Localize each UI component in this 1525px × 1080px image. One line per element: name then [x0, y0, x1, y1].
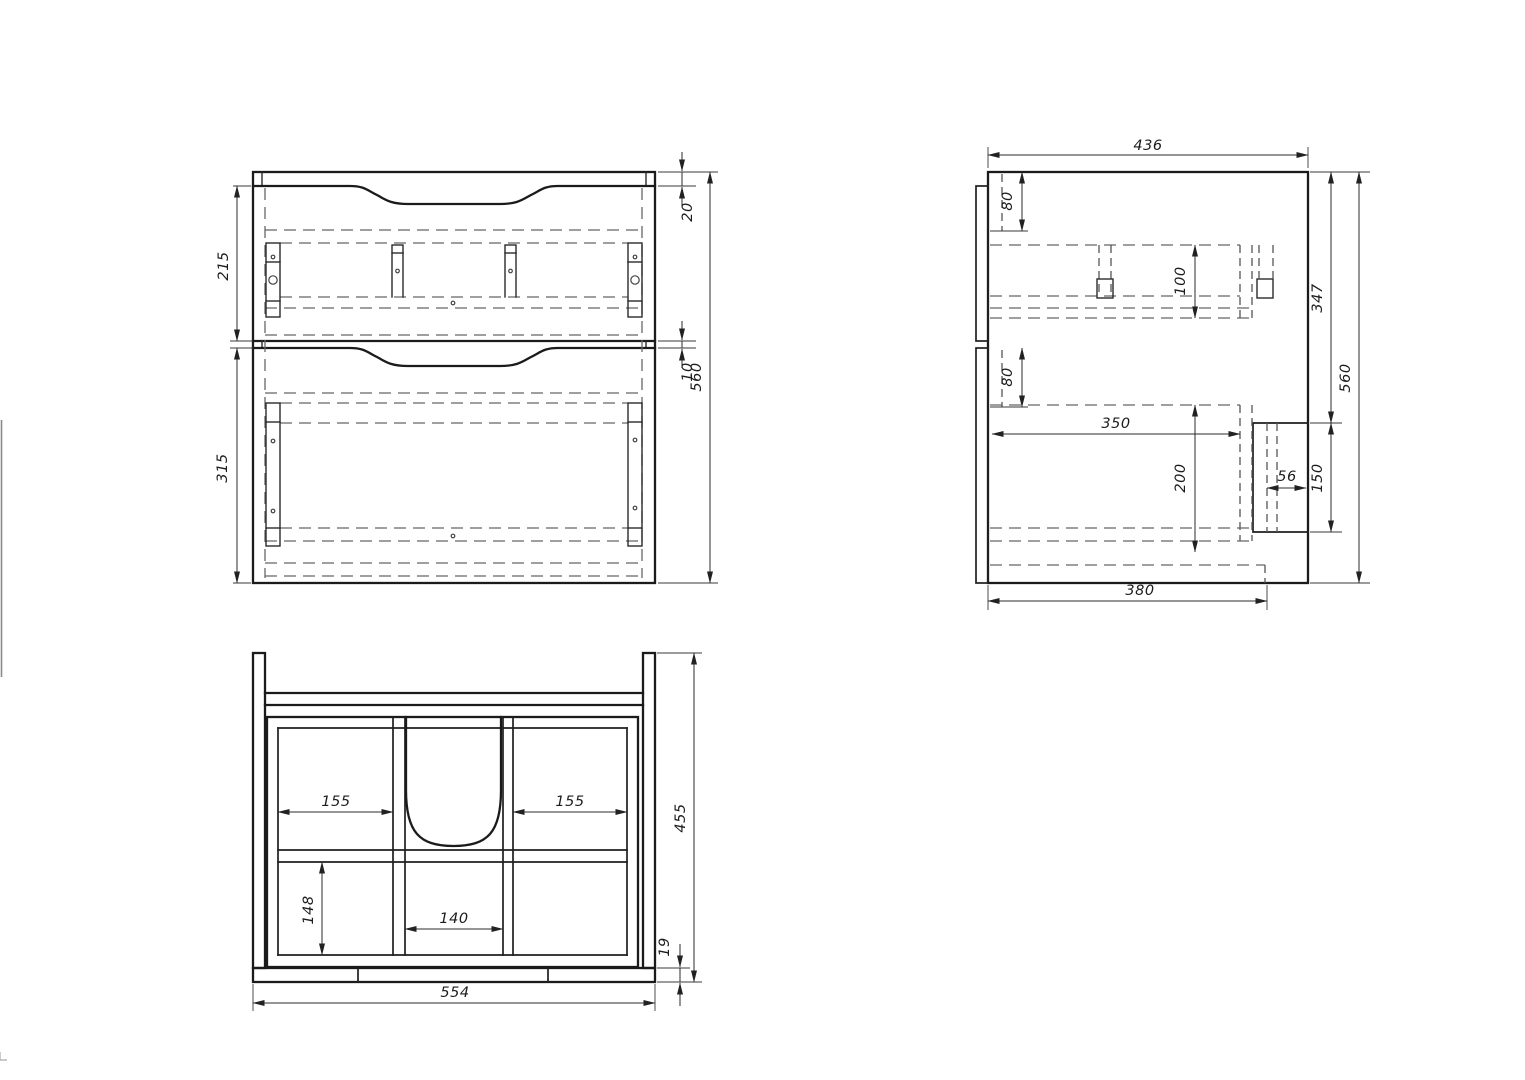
- dim-side-depth: 436: [1133, 138, 1162, 154]
- dim-front-drawer1-height: 215: [216, 251, 232, 280]
- dim-front-total-height: 560: [689, 362, 705, 391]
- dim-side-notch-height: 150: [1310, 463, 1326, 492]
- front-view: 215 315 20 10 560: [215, 152, 718, 583]
- right-side-panel: [643, 653, 655, 968]
- cabinet-front-outline: [253, 172, 655, 583]
- bottom-view: 155 155 140 148 455 19 554: [253, 653, 702, 1011]
- drawer1-front-edge: [976, 186, 988, 341]
- drawer1-front-handle-recess: [253, 186, 655, 204]
- drawing-sheet: 215 315 20 10 560: [0, 0, 1525, 1080]
- dim-side-total-height: 560: [1338, 363, 1354, 392]
- dim-front-top-reveal: 20: [680, 202, 696, 221]
- front-view-hidden-lines: [265, 188, 642, 578]
- sink-cutout: [406, 717, 501, 846]
- dim-side-inner-depth: 350: [1101, 416, 1130, 432]
- dim-side-top-rail-offset: 80: [1000, 191, 1016, 210]
- bottom-view-dimensions: 155 155 140 148 455 19 554: [253, 653, 702, 1011]
- side-view-hidden-lines: [990, 174, 1277, 583]
- dim-side-upper-section: 347: [1310, 283, 1326, 312]
- side-view: 436 80 80 100 350 200 56 380: [976, 138, 1370, 610]
- drawer2-front-edge: [976, 348, 988, 583]
- dim-side-drawer-side-height: 200: [1173, 463, 1189, 492]
- front-view-slide-brackets: [266, 243, 642, 546]
- dim-side-notch-depth: 56: [1277, 469, 1296, 485]
- screw-hole: [269, 276, 277, 284]
- side-panel-outline: [988, 172, 1308, 583]
- front-view-outline: [253, 172, 655, 583]
- front-edge-strip: [253, 968, 655, 982]
- technical-drawing-canvas: 215 315 20 10 560: [0, 0, 1525, 1080]
- dim-bottom-right-cell: 155: [555, 794, 584, 810]
- dim-side-bottom-depth: 380: [1125, 583, 1154, 599]
- dim-bottom-front-thickness: 19: [657, 937, 673, 956]
- sheet-border-artifact: [0, 420, 7, 1060]
- dim-side-rail-band-height: 100: [1173, 266, 1189, 295]
- screw-hole: [271, 255, 275, 259]
- side-view-dimensions: 436 80 80 100 350 200 56 380: [988, 138, 1370, 610]
- left-side-panel: [253, 653, 265, 968]
- dim-bottom-total-width: 554: [440, 985, 469, 1001]
- bottom-view-outline: [253, 653, 655, 982]
- side-view-outline: [976, 172, 1308, 583]
- dim-front-drawer2-height: 315: [215, 453, 231, 482]
- dim-bottom-center-cell: 140: [439, 911, 468, 927]
- drawer2-front-handle-recess: [253, 348, 655, 366]
- dim-bottom-left-cell: 155: [321, 794, 350, 810]
- dim-bottom-rear-cell-depth: 148: [301, 895, 317, 924]
- dim-bottom-total-depth: 455: [673, 803, 689, 832]
- dim-side-mid-rail-offset: 80: [1000, 367, 1016, 386]
